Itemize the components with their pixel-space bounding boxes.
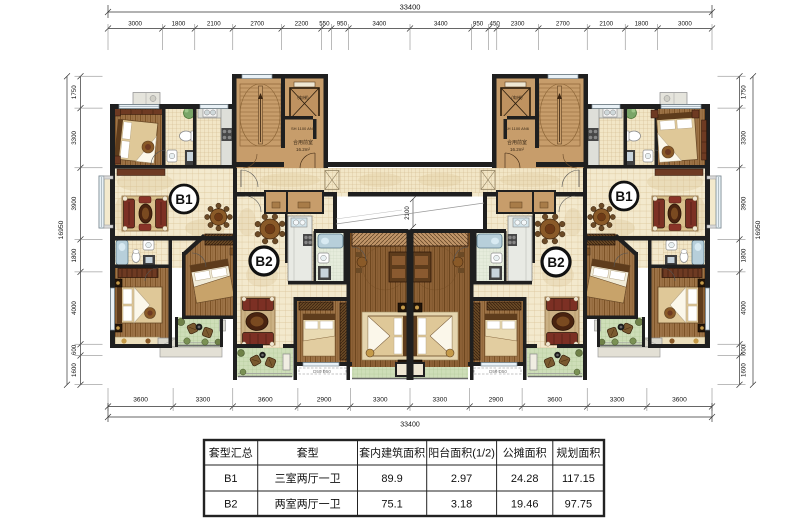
svg-text:套型汇总: 套型汇总	[209, 446, 253, 460]
svg-text:套内建筑面积: 套内建筑面积	[359, 446, 425, 460]
svg-text:1800: 1800	[71, 248, 78, 262]
svg-text:2900: 2900	[489, 397, 504, 404]
svg-text:3600: 3600	[258, 397, 273, 404]
svg-text:D50 D50: D50 D50	[313, 369, 331, 374]
svg-text:450: 450	[490, 21, 501, 28]
svg-text:(电梯): (电梯)	[297, 94, 309, 101]
svg-text:4000: 4000	[741, 301, 748, 315]
svg-text:B2: B2	[547, 255, 564, 270]
svg-text:3000: 3000	[128, 21, 142, 28]
svg-text:1600: 1600	[71, 363, 78, 377]
svg-text:600: 600	[71, 344, 78, 355]
svg-text:合用前室: 合用前室	[293, 139, 313, 146]
svg-text:3300: 3300	[432, 397, 447, 404]
svg-text:2100: 2100	[207, 21, 221, 28]
svg-text:3300: 3300	[373, 397, 388, 404]
svg-text:3400: 3400	[434, 21, 448, 28]
svg-text:1800: 1800	[741, 248, 748, 262]
svg-text:3400: 3400	[372, 21, 386, 28]
svg-text:3600: 3600	[672, 397, 687, 404]
svg-text:B2: B2	[224, 499, 237, 511]
svg-text:600: 600	[741, 344, 748, 355]
svg-text:两室两厅一卫: 两室两厅一卫	[275, 497, 341, 511]
svg-text:97.75: 97.75	[565, 499, 593, 511]
svg-text:950: 950	[337, 21, 348, 28]
svg-text:阳台面积(1/2): 阳台面积(1/2)	[428, 446, 495, 460]
svg-text:1800: 1800	[172, 21, 186, 28]
svg-text:2.97: 2.97	[451, 473, 472, 485]
svg-text:16.2m²: 16.2m²	[296, 147, 311, 152]
svg-text:3300: 3300	[71, 130, 78, 144]
svg-text:89.9: 89.9	[381, 473, 402, 485]
svg-text:3600: 3600	[133, 397, 148, 404]
svg-text:16950: 16950	[58, 220, 65, 239]
svg-text:16.2m²: 16.2m²	[510, 147, 525, 152]
svg-text:16950: 16950	[755, 220, 762, 239]
svg-text:2900: 2900	[317, 397, 332, 404]
svg-text:33400: 33400	[400, 422, 420, 429]
svg-text:1800: 1800	[635, 21, 649, 28]
svg-text:3000: 3000	[678, 21, 692, 28]
svg-text:(电梯): (电梯)	[511, 94, 523, 101]
svg-text:117.15: 117.15	[562, 473, 595, 485]
svg-text:3300: 3300	[741, 130, 748, 144]
svg-text:2300: 2300	[511, 21, 525, 28]
svg-text:SH 1100 AN6: SH 1100 AN6	[505, 126, 530, 131]
svg-text:三室两厅一卫: 三室两厅一卫	[275, 471, 341, 485]
svg-text:合用前室: 合用前室	[507, 139, 527, 146]
svg-text:B1: B1	[175, 192, 193, 207]
svg-text:550: 550	[319, 21, 330, 28]
svg-text:950: 950	[473, 21, 484, 28]
svg-text:2700: 2700	[250, 21, 264, 28]
svg-text:2200: 2200	[295, 21, 309, 28]
svg-text:1600: 1600	[741, 363, 748, 377]
svg-text:75.1: 75.1	[381, 499, 402, 511]
svg-text:B2: B2	[255, 254, 272, 269]
svg-text:2100: 2100	[599, 21, 613, 28]
svg-text:33400: 33400	[400, 3, 421, 12]
svg-text:B1: B1	[224, 473, 237, 485]
svg-text:套型: 套型	[297, 446, 319, 460]
svg-text:2100: 2100	[405, 206, 411, 220]
svg-text:B1: B1	[615, 189, 633, 204]
svg-text:规划面积: 规划面积	[556, 446, 600, 460]
svg-text:2700: 2700	[556, 21, 570, 28]
svg-text:D50 D50: D50 D50	[489, 369, 507, 374]
svg-text:3300: 3300	[610, 397, 625, 404]
svg-text:4000: 4000	[71, 301, 78, 315]
svg-text:1750: 1750	[71, 85, 78, 99]
svg-text:24.28: 24.28	[511, 473, 539, 485]
svg-text:3300: 3300	[196, 397, 211, 404]
svg-text:公摊面积: 公摊面积	[503, 446, 547, 460]
svg-text:3900: 3900	[741, 196, 748, 210]
svg-text:SH 1100 AN6: SH 1100 AN6	[291, 126, 316, 131]
svg-text:19.46: 19.46	[511, 499, 539, 511]
svg-text:1750: 1750	[741, 85, 748, 99]
svg-text:3.18: 3.18	[451, 499, 472, 511]
svg-text:3900: 3900	[71, 196, 78, 210]
svg-text:3600: 3600	[547, 397, 562, 404]
